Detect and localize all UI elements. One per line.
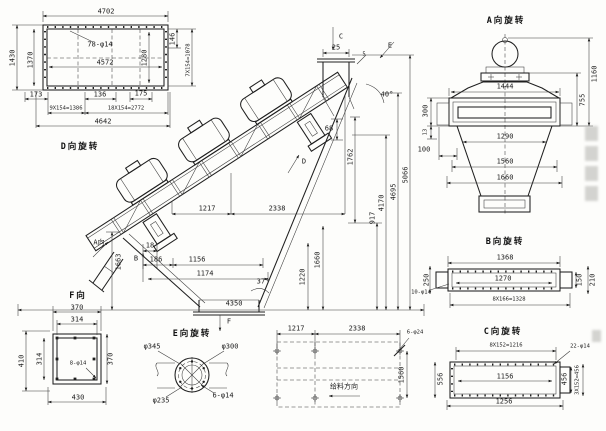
c-dim-pitch: 8X152=1216: [489, 343, 522, 349]
main-dim-1220: 1220: [300, 269, 307, 286]
e-view-lines: [156, 351, 228, 397]
main-dim-1663: 1663: [116, 254, 123, 271]
d-view-lines: [12, 11, 196, 128]
main-dim-5066: 5066: [403, 167, 410, 184]
e-dim-holes: 6-φ14: [212, 393, 233, 400]
b-dim-left: 250: [424, 274, 431, 287]
main-label-b: B: [134, 256, 138, 263]
c-dim-right2: 3X152=456: [575, 365, 581, 395]
main-dim-917: 917: [370, 212, 377, 225]
c-dim-inner: 1156: [497, 374, 514, 381]
f-dim-right: 370: [108, 353, 115, 366]
main-dim-1660: 1660: [315, 252, 322, 269]
a-dim-left1: 300: [423, 105, 430, 118]
d-dim-bottom-right: 175: [135, 91, 148, 98]
main-dim-68: 68: [325, 126, 333, 133]
c-dim-left: 556: [438, 373, 445, 386]
d-dim-bottom-pitch1: 9X154=1386: [49, 106, 82, 112]
e-dim-inner: φ235: [153, 398, 170, 405]
main-dim-5: 5: [362, 52, 365, 58]
main-label-f: F: [227, 319, 231, 326]
main-view-dims: [18, 27, 424, 331]
a-dim-left3: 100: [418, 147, 431, 154]
engineering-drawing-canvas: D向旋转 4702 78-φ14 4572 1430 1370 1280 146…: [0, 0, 606, 431]
d-dim-top: 4702: [98, 9, 115, 16]
main-dim-4695: 4695: [391, 184, 398, 201]
main-dim-1156: 1156: [189, 257, 206, 264]
main-label-a: A向: [93, 240, 104, 247]
base-feed-direction-label: 给料方向: [330, 384, 358, 391]
main-dim-4350: 4350: [226, 301, 243, 308]
c-dim-right1: 456: [562, 373, 569, 386]
d-dim-bottom-left: 173: [30, 92, 43, 99]
main-label-e: E: [388, 43, 392, 50]
b-dim-top: 1368: [497, 255, 514, 262]
a-dim-w1: 1290: [497, 134, 514, 141]
d-dim-bottom-total: 4642: [95, 119, 112, 126]
c-view-title: C向旋转: [484, 328, 523, 337]
watermark: [585, 126, 601, 342]
c-dim-bottom: 1256: [496, 399, 513, 406]
base-dim-depth: 1560: [399, 367, 406, 384]
a-view-title: A向旋转: [487, 17, 526, 26]
a-dim-w3: 1660: [497, 175, 514, 182]
d-view-title: D向旋转: [61, 143, 100, 152]
base-view-lines: [273, 330, 409, 407]
f-dim-top-inner: 314: [71, 317, 84, 324]
base-dim-x1: 1217: [288, 326, 305, 333]
b-view-title: B向旋转: [486, 238, 525, 247]
b-dim-pitch: 8X166=1328: [492, 297, 525, 303]
main-dim-1762: 1762: [348, 149, 355, 166]
d-dim-bottom-mid: 136: [94, 92, 107, 99]
main-dim-1217: 1217: [199, 206, 216, 213]
f-dim-holes: 8-φ14: [70, 361, 87, 367]
main-view-hopper-chute: [89, 59, 357, 315]
c-dim-holes: 22-φ14: [570, 344, 590, 350]
drawing-linework: [0, 0, 606, 431]
main-dim-25: 25: [332, 45, 340, 52]
main-dim-angle37: 37°: [257, 279, 270, 286]
f-dim-left-inner: 314: [37, 353, 44, 366]
d-dim-right-pitch: 7X154=1078: [186, 43, 192, 76]
b-dim-right1: 150: [577, 274, 584, 287]
d-dim-left-inner: 1370: [28, 52, 35, 69]
base-dim-holes: 6-φ24: [407, 330, 424, 336]
a-dim-height: 1160: [592, 66, 599, 83]
main-dim-angle40: 40°: [381, 92, 394, 99]
main-dim-2338: 2338: [269, 206, 286, 213]
main-label-c: C: [339, 34, 343, 41]
f-dim-left: 410: [19, 355, 26, 368]
f-dim-bottom: 430: [72, 395, 85, 402]
f-dim-top: 370: [71, 305, 84, 312]
a-dim-left2: 13: [423, 129, 429, 136]
d-dim-left-outer: 1430: [10, 50, 17, 67]
main-dim-18: 18: [146, 243, 154, 250]
b-dim-holes: 10-φ14: [411, 290, 431, 296]
main-label-d: D: [302, 159, 306, 166]
main-dim-186: 186: [150, 257, 163, 264]
a-dim-w2: 1560: [497, 159, 514, 166]
b-dim-inner: 1270: [495, 276, 512, 283]
f-view-title: F向: [69, 292, 87, 301]
b-dim-right2: 210: [590, 274, 597, 287]
d-dim-inner: 4572: [97, 60, 114, 67]
e-dim-outer: φ345: [144, 344, 161, 351]
base-dim-x2: 2338: [349, 326, 366, 333]
e-dim-bolt-circle: φ300: [222, 344, 239, 351]
a-view-lines: [427, 34, 593, 216]
d-dim-holes: 78-φ14: [87, 42, 112, 49]
main-dim-1174: 1174: [197, 271, 214, 278]
a-dim-top: 1444: [497, 84, 514, 91]
main-dim-4170: 4170: [379, 195, 386, 212]
d-dim-bottom-pitch2: 18X154=2772: [108, 106, 144, 112]
d-dim-right-inner: 1280: [142, 50, 149, 67]
d-dim-right-small: 146: [170, 33, 177, 46]
e-view-title: E向旋转: [173, 330, 212, 339]
a-dim-height2: 755: [580, 94, 587, 107]
